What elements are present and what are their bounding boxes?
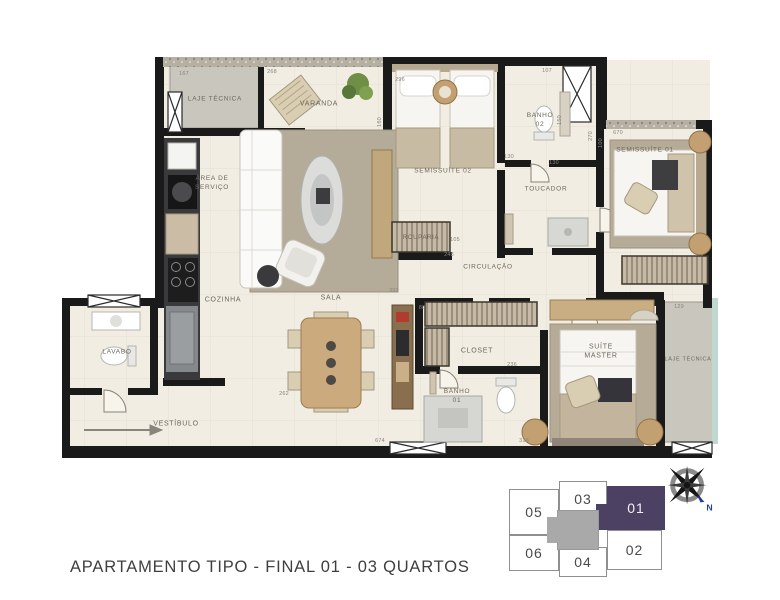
compass-n-label: N (706, 502, 712, 512)
keyplan-unit-04: 04 (559, 547, 607, 577)
keyplan-unit-01: 01 (607, 486, 665, 530)
keyplan: 05 03 01 06 04 02 N (0, 0, 780, 600)
keyplan-unit-02: 02 (607, 530, 662, 570)
caption: APARTAMENTO TIPO - FINAL 01 - 03 QUARTOS (70, 558, 470, 577)
keyplan-unit-05-label: 05 (525, 504, 543, 520)
keyplan-core-extension (547, 517, 559, 543)
compass-icon: N (660, 462, 718, 518)
keyplan-unit-01-label: 01 (627, 500, 645, 516)
keyplan-unit-06-label: 06 (525, 545, 543, 561)
keyplan-unit-04-label: 04 (574, 554, 592, 570)
keyplan-core (557, 510, 599, 550)
keyplan-unit-03-label: 03 (574, 491, 592, 507)
floor-plan-page: LAJE TÉCNICAVARANDAÁREA DE SERVIÇOCOZINH… (0, 0, 780, 600)
keyplan-unit-02-label: 02 (626, 542, 644, 558)
